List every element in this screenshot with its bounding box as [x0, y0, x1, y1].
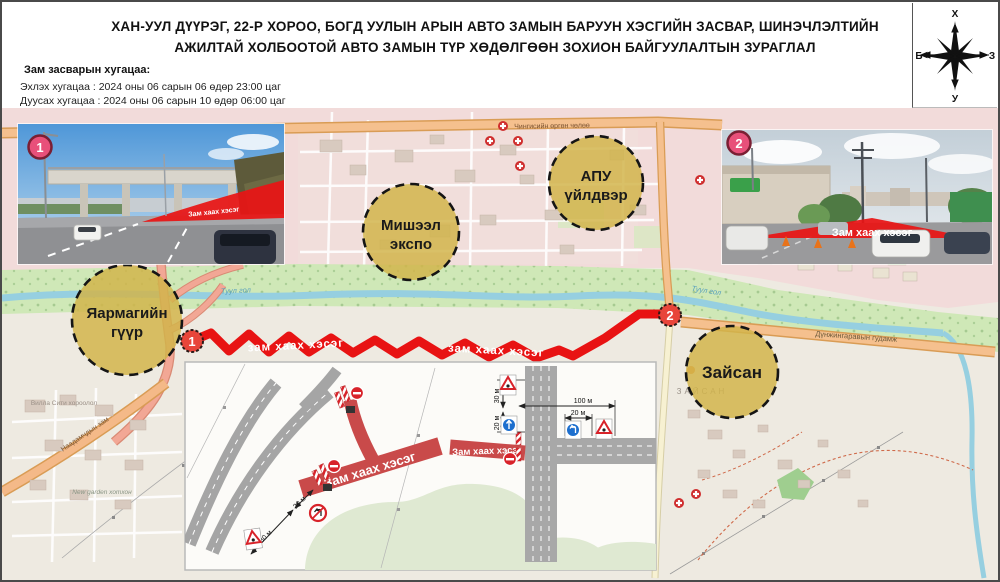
svg-text:100 м: 100 м	[574, 398, 593, 405]
compass-box: Х У Б З	[912, 3, 997, 108]
river-label-west: Туул гол	[221, 285, 252, 296]
traffic-map-page: Чингисийн өргөн чөлөө Дүнжингаравын гуда…	[0, 0, 1000, 582]
landmark-mishel-expo: Мишээлэкспо	[363, 184, 459, 280]
page-title: ХАН-УУЛ ДҮҮРЭГ, 22-Р ХОРОО, БОГД УУЛЫН А…	[92, 16, 898, 58]
compass-east-label: З	[989, 51, 995, 62]
compass-north-label: Х	[952, 9, 959, 20]
marker-1: 1	[181, 330, 203, 352]
header: ХАН-УУЛ ДҮҮРЭГ, 22-Р ХОРОО, БОГД УУЛЫН А…	[2, 2, 998, 108]
svg-text:2: 2	[735, 136, 742, 151]
photo2-overlay-label: Зам хаах хэсэг	[832, 227, 913, 239]
photo1-marker: 1	[29, 136, 52, 159]
mandatory-sign-right	[565, 421, 581, 439]
title-line-2: АЖИЛТАЙ ХОЛБООТОЙ АВТО ЗАМЫН ТҮР ХӨДӨЛГӨ…	[92, 37, 898, 58]
detail-inset: Зам хаах хэсэг Зам хаах хэсэг	[185, 362, 656, 572]
photo-inset-1: Зам хаах хэсэг 1	[17, 123, 285, 265]
compass-south-label: У	[952, 94, 959, 105]
svg-text:1: 1	[188, 334, 195, 349]
schedule-end: Дуусах хугацаа : 2024 оны 06 сарын 10 өд…	[20, 95, 286, 107]
roadworks-sign-bottomleft	[244, 528, 263, 550]
photo2-marker: 2	[728, 132, 751, 155]
compass-west-label: Б	[915, 51, 922, 62]
svg-text:Зайсан: Зайсан	[702, 363, 762, 382]
district-label-villa-city: Вилла Сити хороолол	[31, 400, 98, 407]
svg-text:2: 2	[666, 308, 673, 323]
marker-2: 2	[659, 304, 681, 326]
compass-star	[925, 21, 985, 91]
mandatory-sign-left	[501, 416, 517, 434]
photo-inset-2: Зам хаах хэсэг 2	[721, 129, 996, 265]
title-line-1: ХАН-УУЛ ДҮҮРЭГ, 22-Р ХОРОО, БОГД УУЛЫН А…	[92, 16, 898, 37]
roadworks-sign-top	[500, 375, 516, 395]
road-label-chinggis: Чингисийн өргөн чөлөө	[514, 121, 590, 130]
svg-text:1: 1	[36, 140, 43, 155]
schedule-start: Эхлэх хугацаа : 2024 оны 06 сарын 06 өдө…	[20, 81, 281, 93]
landmark-zaisan: Зайсан	[686, 326, 778, 418]
dark-suv	[214, 230, 276, 264]
svg-text:20 м: 20 м	[494, 416, 501, 431]
roadworks-sign-right	[596, 419, 612, 439]
svg-text:20 м: 20 м	[571, 410, 586, 417]
landmark-yarmag-bridge: Яармагийнгүүр	[72, 265, 182, 375]
compass-rose: Х У Б З	[913, 3, 997, 107]
no-left-turn-sign	[310, 505, 326, 521]
landmark-apu-factory: АПУүйлдвэр	[549, 136, 643, 230]
white-car	[74, 225, 101, 240]
schedule-heading: Зам засварын хугацаа:	[24, 64, 150, 76]
district-label-new-garden: New garden хотхон	[72, 489, 132, 496]
